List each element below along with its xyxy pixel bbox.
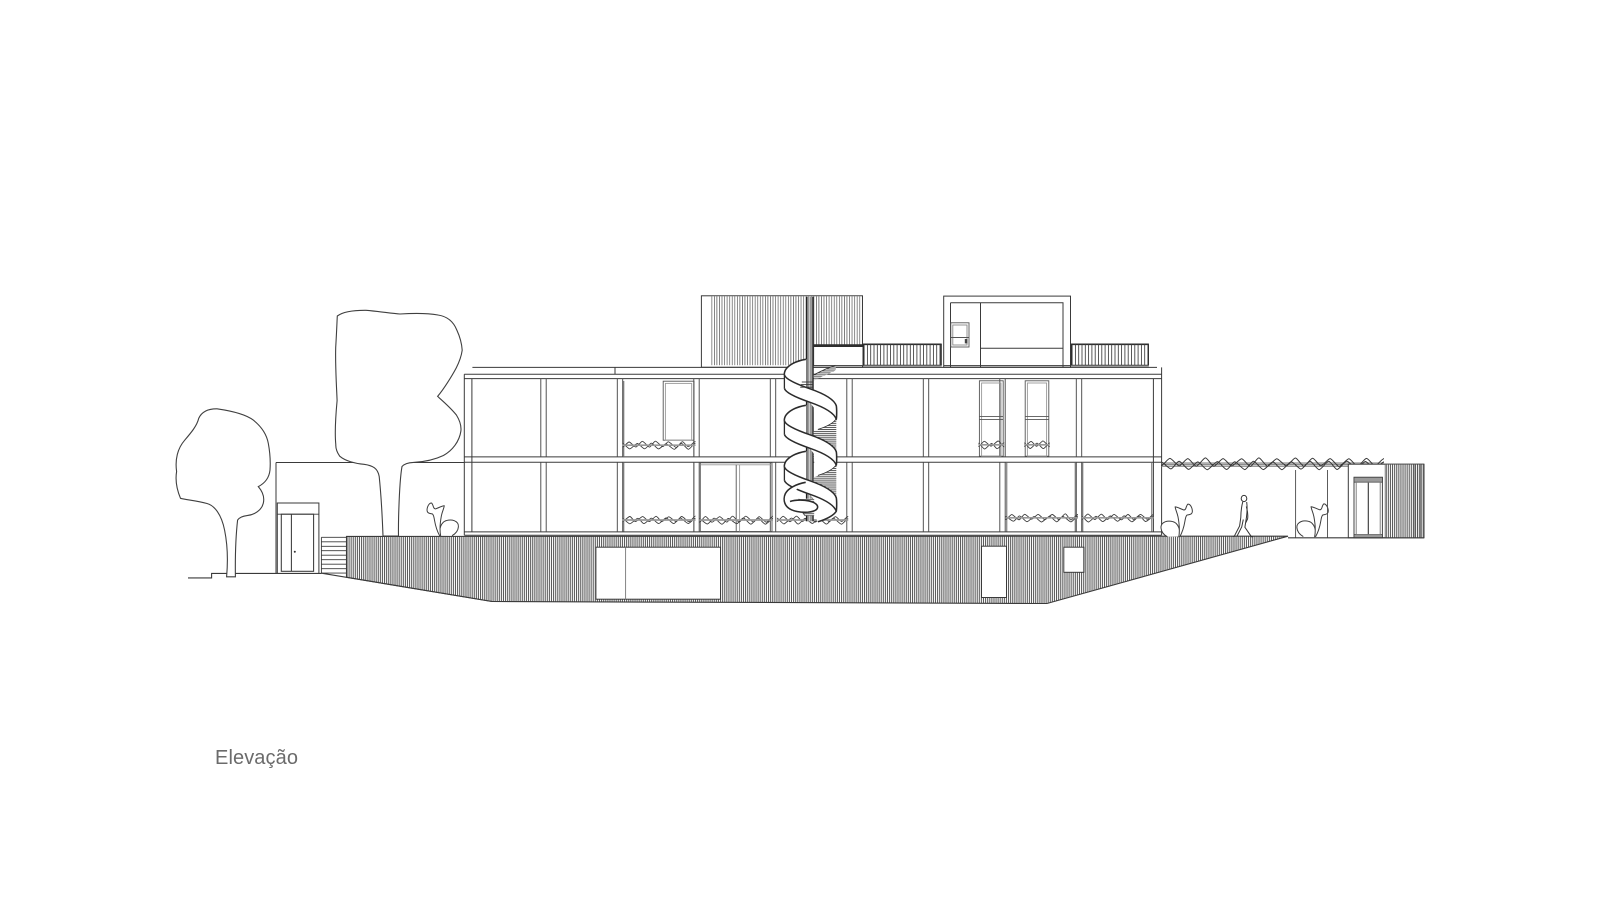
svg-text:Elevação: Elevação [215,747,298,769]
